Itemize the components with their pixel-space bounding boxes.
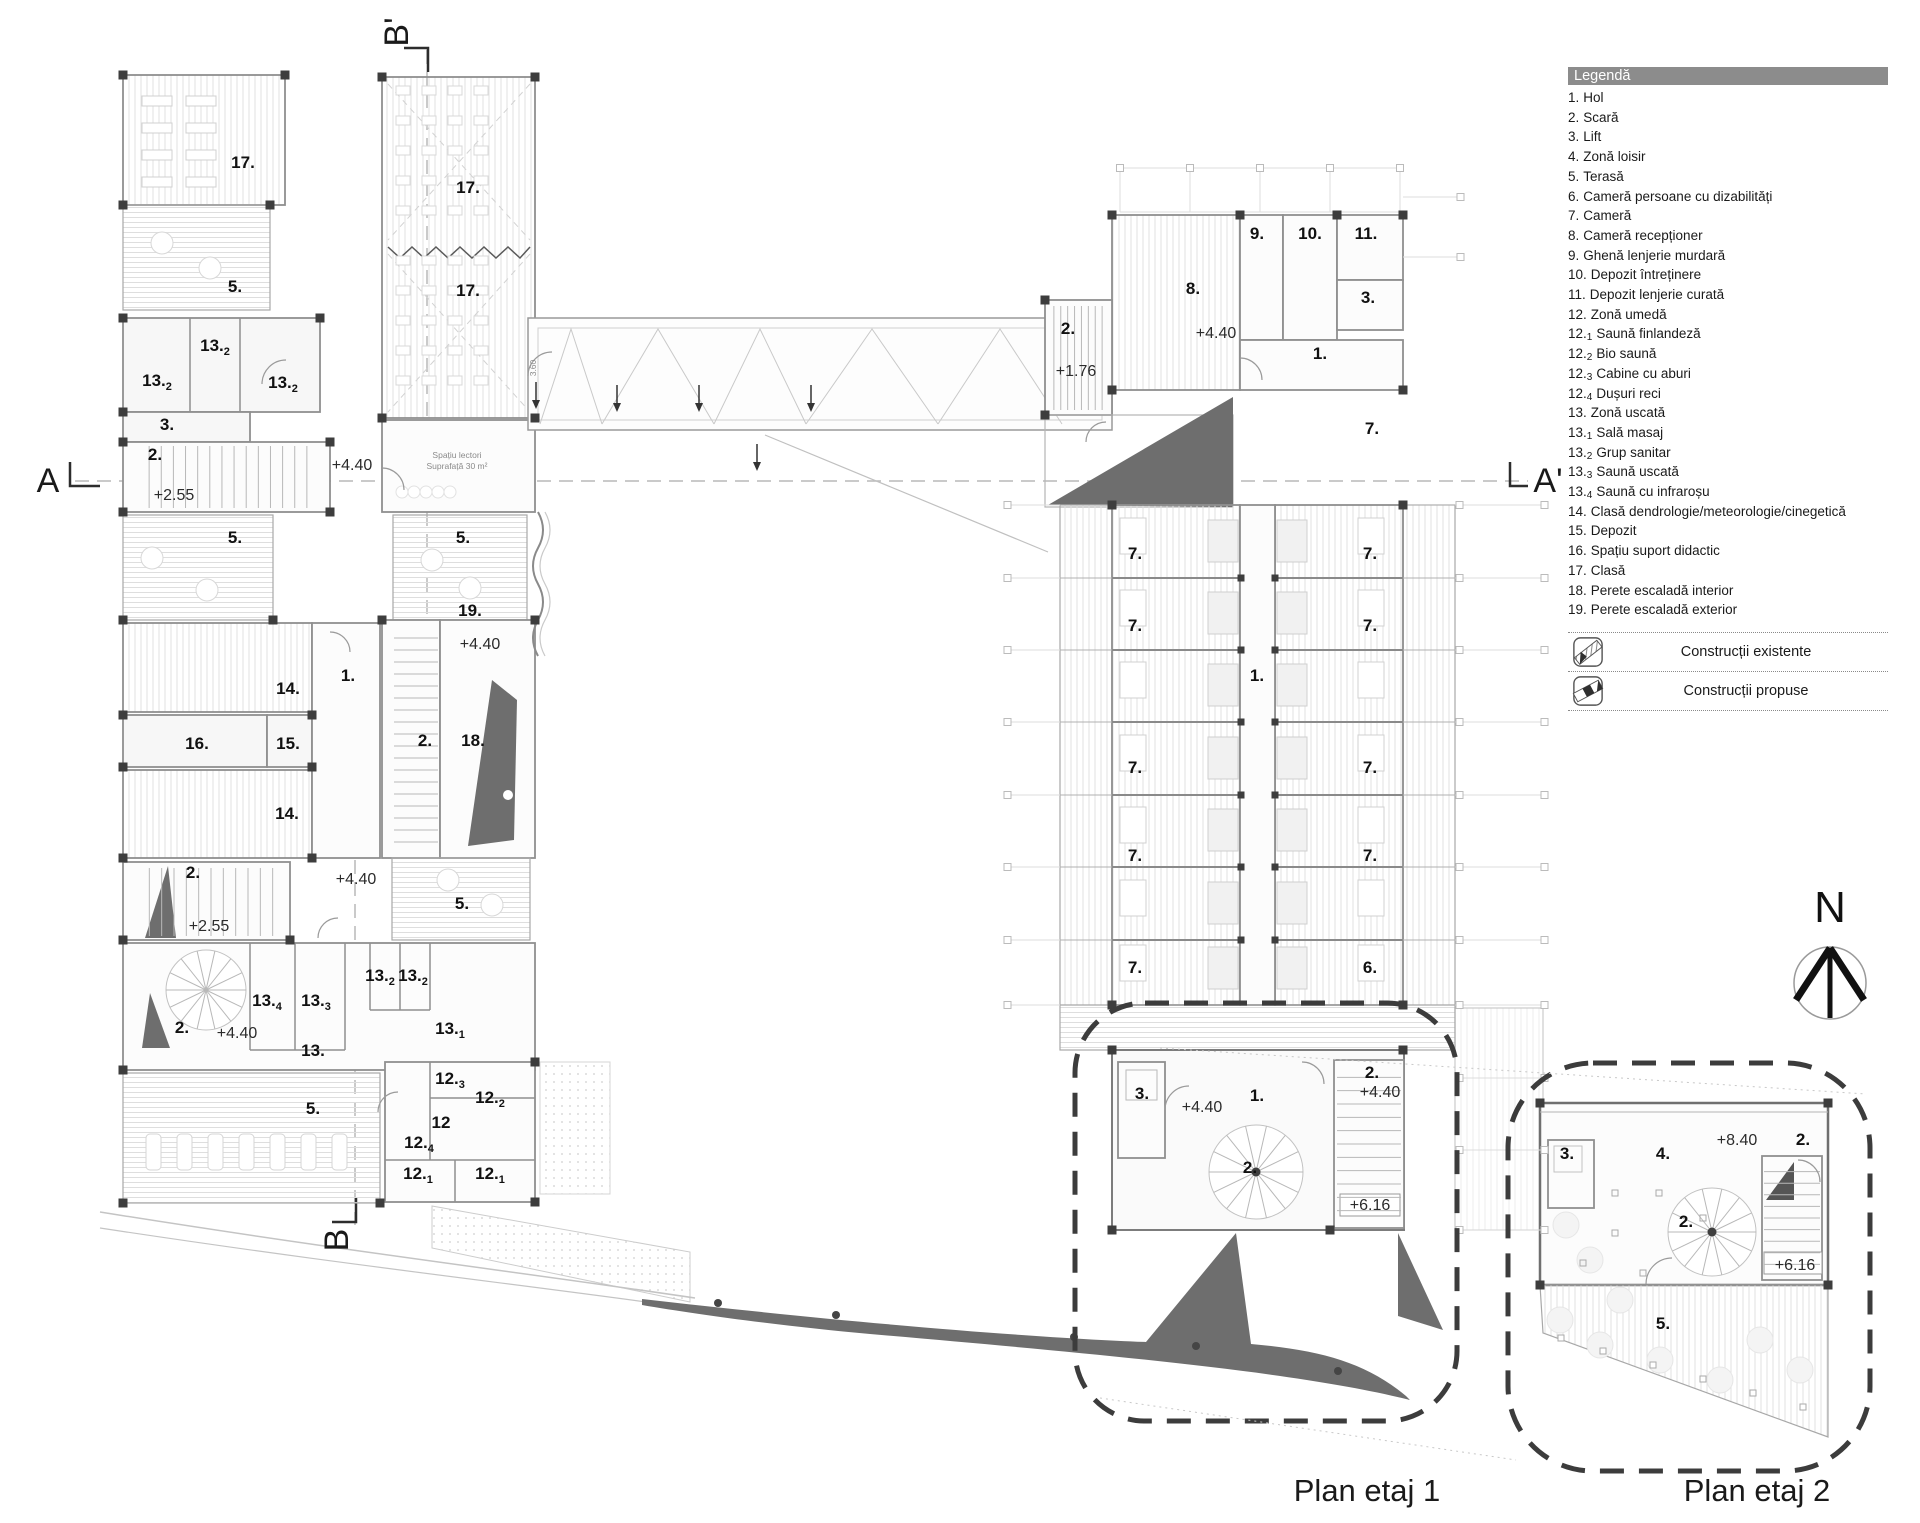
plan-label: 5. bbox=[455, 894, 469, 913]
north-label: N bbox=[1814, 883, 1846, 932]
legend-item: 15.Depozit bbox=[1568, 523, 1888, 543]
legend-item: 6.Cameră persoane cu dizabilități bbox=[1568, 189, 1888, 209]
plan-label: 2. bbox=[175, 1018, 189, 1037]
plan-label: 3. bbox=[1560, 1144, 1574, 1163]
plan-label: 9. bbox=[1250, 224, 1264, 243]
legend-list: 1.Hol2.Scară3.Lift4.Zonă loisir5.Terasă6… bbox=[1568, 90, 1888, 622]
plan-label: 2. bbox=[1243, 1158, 1257, 1177]
plan-label: +6.16 bbox=[1350, 1197, 1391, 1214]
plan-label: +4.40 bbox=[217, 1025, 258, 1042]
plan-label: 17. bbox=[231, 153, 255, 172]
legend-item: 13.4Saună cu infraroșu bbox=[1568, 484, 1888, 504]
plan-label: +4.40 bbox=[1182, 1099, 1223, 1116]
plan-label: 14. bbox=[275, 804, 299, 823]
legend-item: 2.Scară bbox=[1568, 110, 1888, 130]
legend-item: 7.Cameră bbox=[1568, 208, 1888, 228]
plan-label: 3.60 bbox=[528, 359, 538, 376]
plan-label: 2. bbox=[186, 863, 200, 882]
plan-label: Plan etaj 2 bbox=[1684, 1473, 1831, 1508]
construction-legend: Construcții existente Construcții propus… bbox=[1568, 632, 1888, 711]
plan-label: Suprafață 30 m² bbox=[427, 461, 488, 471]
plan-label: 1. bbox=[1250, 666, 1264, 685]
north-arrow: N bbox=[1794, 883, 1866, 1019]
plan-label: 2. bbox=[1796, 1130, 1810, 1149]
legend-item: 13.Zonă uscată bbox=[1568, 405, 1888, 425]
plan-label: 7. bbox=[1128, 758, 1142, 777]
legend-item: 12.1Saună finlandeză bbox=[1568, 326, 1888, 346]
legend-item: 8.Cameră recepționer bbox=[1568, 228, 1888, 248]
existing-construction-icon bbox=[1572, 636, 1604, 668]
plan-label: 15. bbox=[276, 734, 300, 753]
plan-label: 2. bbox=[1679, 1212, 1693, 1231]
legend-item: 10.Depozit întreținere bbox=[1568, 267, 1888, 287]
plan-label: +4.40 bbox=[1360, 1084, 1401, 1101]
plan-label: 7. bbox=[1128, 958, 1142, 977]
plan-label: 7. bbox=[1363, 758, 1377, 777]
plan-label: Plan etaj 1 bbox=[1294, 1473, 1441, 1508]
plan-label: 7. bbox=[1365, 419, 1379, 438]
plan-label: 6. bbox=[1363, 958, 1377, 977]
plan-label: 3. bbox=[160, 415, 174, 434]
plan-label: 2. bbox=[1365, 1063, 1379, 1082]
legend-item: 13.3Saună uscată bbox=[1568, 464, 1888, 484]
plan-label: +6.16 bbox=[1775, 1257, 1816, 1274]
floor-plan-sheet: N 17.5.13.213.213.23.2.+2.55+4.4017.17.5… bbox=[0, 0, 1920, 1523]
plan-label: 2. bbox=[148, 445, 162, 464]
plan-label: 13. bbox=[301, 1041, 325, 1060]
plan-label: 7. bbox=[1128, 544, 1142, 563]
plan-label: 3. bbox=[1361, 288, 1375, 307]
plan-label: Spațiu lectori bbox=[432, 450, 481, 460]
legend-row-existing: Construcții existente bbox=[1568, 632, 1888, 671]
legend-item: 4.Zonă loisir bbox=[1568, 149, 1888, 169]
plan-label: A' bbox=[1533, 462, 1562, 500]
plan-label: 11. bbox=[1355, 224, 1378, 243]
legend-item: 12.3Cabine cu aburi bbox=[1568, 366, 1888, 386]
connector-bridge bbox=[528, 318, 1112, 552]
legend-item: 19.Perete escaladă exterior bbox=[1568, 602, 1888, 622]
legend-item: 13.2Grup sanitar bbox=[1568, 445, 1888, 465]
plan-label: B bbox=[318, 1229, 356, 1252]
legend-item: 16.Spațiu suport didactic bbox=[1568, 543, 1888, 563]
plan-label: 2. bbox=[1061, 319, 1075, 338]
plan-label: 3. bbox=[1135, 1084, 1149, 1103]
plan-label: +4.40 bbox=[332, 457, 373, 474]
plan-label: +1.76 bbox=[1056, 363, 1097, 380]
plan-label: 8. bbox=[1186, 279, 1200, 298]
plan-label: 1. bbox=[341, 666, 355, 685]
legend-item: 5.Terasă bbox=[1568, 169, 1888, 189]
plan-label: +4.40 bbox=[336, 871, 377, 888]
plan-label: 17. bbox=[456, 281, 480, 300]
plan-label: 5. bbox=[1656, 1314, 1670, 1333]
plan-label: 18. bbox=[461, 731, 485, 750]
plan-label: 16. bbox=[185, 734, 209, 753]
legend-item: 12.2Bio saună bbox=[1568, 346, 1888, 366]
plan-label: 7. bbox=[1128, 846, 1142, 865]
plan-label: 7. bbox=[1128, 616, 1142, 635]
plan-label: 5. bbox=[228, 277, 242, 296]
plan-label: 1. bbox=[1313, 344, 1327, 363]
legend-item: 13.1Sală masaj bbox=[1568, 425, 1888, 445]
proposed-construction-icon bbox=[1572, 675, 1604, 707]
legend-header: Legendă bbox=[1568, 67, 1888, 85]
plan-label: +4.40 bbox=[1196, 325, 1237, 342]
plan-label: A bbox=[37, 462, 60, 500]
legend-item: 14.Clasă dendrologie/meteorologie/cinege… bbox=[1568, 504, 1888, 524]
path-wedges bbox=[642, 1233, 1410, 1400]
legend-item: 3.Lift bbox=[1568, 129, 1888, 149]
plan-label: 19. bbox=[458, 601, 482, 620]
legend-item: 18.Perete escaladă interior bbox=[1568, 583, 1888, 603]
plan-label: +2.55 bbox=[154, 487, 195, 504]
legend-item: 11.Depozit lenjerie curată bbox=[1568, 287, 1888, 307]
plan-label: 7. bbox=[1363, 616, 1377, 635]
legend-item: 12.Zonă umedă bbox=[1568, 307, 1888, 327]
plan-label: 17. bbox=[456, 178, 480, 197]
legend-item: 12.4Dușuri reci bbox=[1568, 386, 1888, 406]
legend-item: 17.Clasă bbox=[1568, 563, 1888, 583]
plan-label: 2. bbox=[418, 731, 432, 750]
plan-label: 14. bbox=[276, 679, 300, 698]
legend-item: 1.Hol bbox=[1568, 90, 1888, 110]
plan-label: 10. bbox=[1298, 224, 1322, 243]
plan-label: 5. bbox=[306, 1099, 320, 1118]
plan-label: +8.40 bbox=[1717, 1132, 1758, 1149]
legend-item: 9.Ghenă lenjerie murdară bbox=[1568, 248, 1888, 268]
plan-label: 7. bbox=[1363, 544, 1377, 563]
plan-label: 7. bbox=[1363, 846, 1377, 865]
plan-label: 4. bbox=[1656, 1144, 1670, 1163]
plan-label: 12 bbox=[432, 1113, 451, 1132]
legend-panel: Legendă 1.Hol2.Scară3.Lift4.Zonă loisir5… bbox=[1568, 67, 1888, 711]
plan-label: 1. bbox=[1250, 1086, 1264, 1105]
plan-label: +2.55 bbox=[189, 918, 230, 935]
plan-label: B' bbox=[378, 17, 416, 46]
plan-label: 5. bbox=[456, 528, 470, 547]
legend-row-proposed: Construcții propuse bbox=[1568, 671, 1888, 710]
plan-label: 5. bbox=[228, 528, 242, 547]
plan-label: +4.40 bbox=[460, 636, 501, 653]
